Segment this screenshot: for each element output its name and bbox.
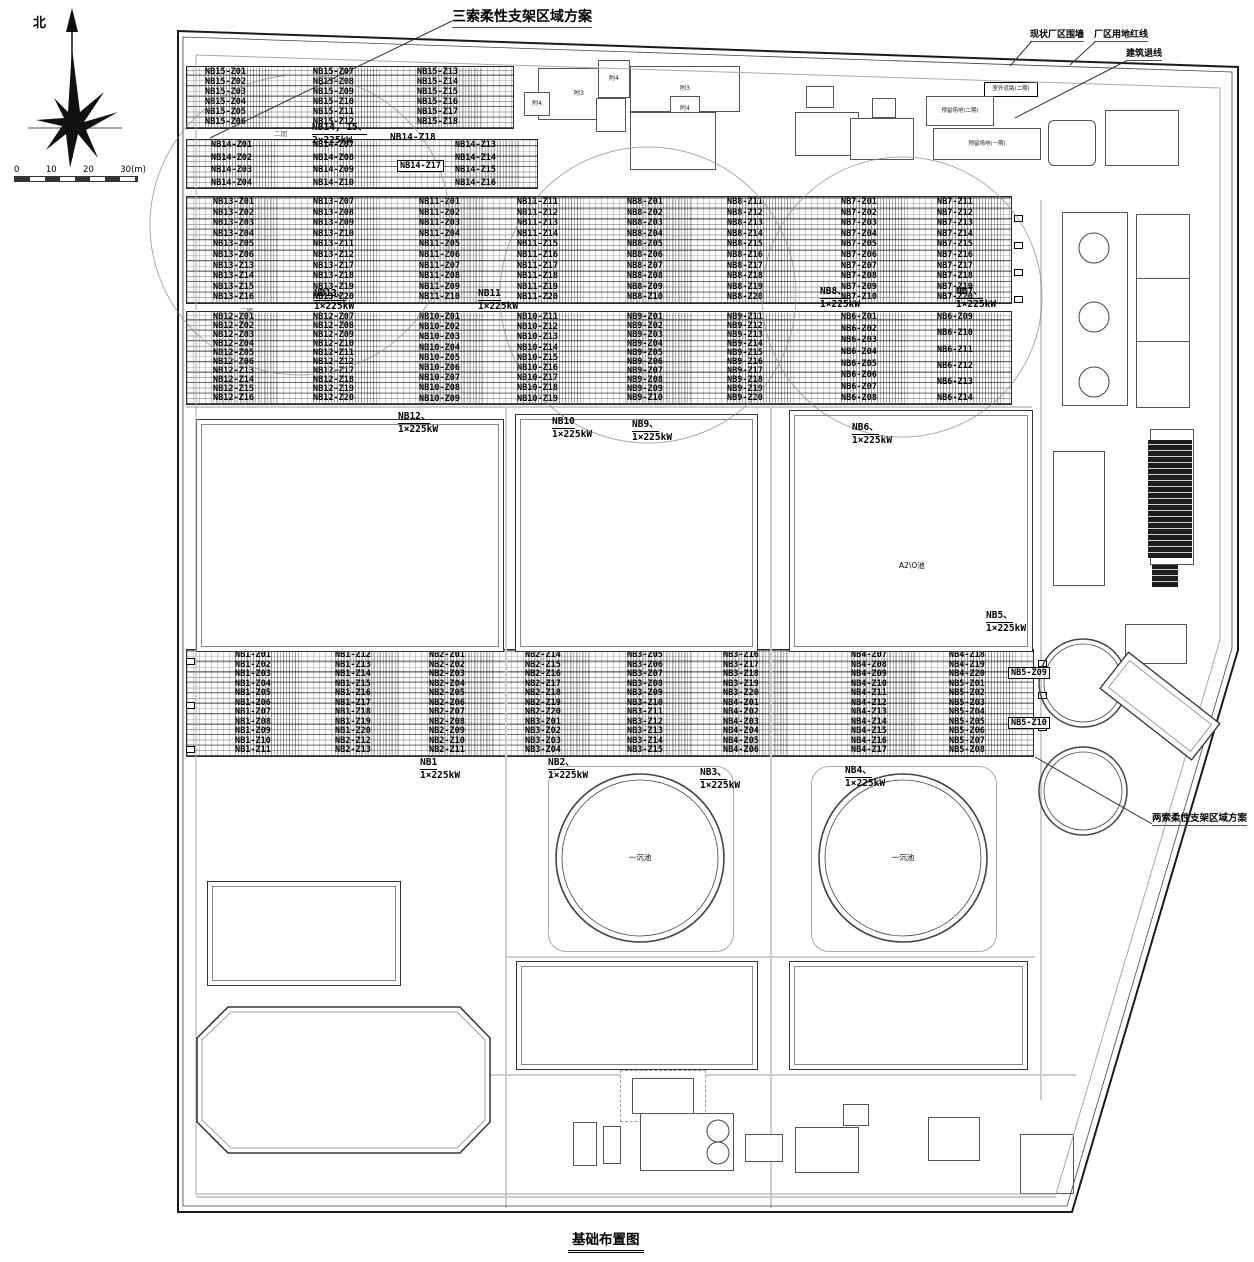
pv-row-label: NB4-Z05 [723, 737, 787, 746]
pv-row-label: NB12-Z16 [213, 394, 277, 403]
pv-row-label: NB1-Z13 [335, 661, 399, 670]
pv-row-label: NB4-Z19 [949, 661, 1013, 670]
pv-row-label: NB2-Z05 [429, 689, 493, 698]
road-line [770, 408, 772, 1208]
pv-label-column: NB1-Z12NB1-Z13NB1-Z14NB1-Z15NB1-Z16NB1-Z… [335, 651, 399, 755]
pv-row-label: NB7-Z02 [841, 209, 905, 218]
pv-row-label: NB13-Z13 [213, 262, 277, 271]
inverter-label-nb11: NB111×225kW [478, 288, 518, 313]
pv-row-label: NB4-Z08 [851, 661, 915, 670]
pv-row-label: NB1-Z19 [335, 718, 399, 727]
pv-row-label: NB6-Z06 [841, 371, 905, 380]
phase1-area-label: 预留场地(一期) [968, 141, 1005, 147]
pv-label-column: NB8-Z11NB8-Z12NB8-Z13NB8-Z14NB8-Z15NB8-Z… [727, 198, 791, 302]
pv-label-column: NB6-Z01NB6-Z02NB6-Z03NB6-Z04NB6-Z05NB6-Z… [841, 313, 905, 403]
callout-nb14-z17: NB14-Z17 [397, 160, 444, 172]
road-line [186, 406, 1032, 408]
pv-label-column: NB3-Z16NB3-Z17NB3-Z18NB3-Z19NB3-Z20NB4-Z… [723, 651, 787, 755]
pv-label-column: NB14-Z13NB14-Z14NB14-Z15NB14-Z16 [455, 141, 519, 187]
pv-row-label: NB3-Z07 [627, 670, 691, 679]
pv-row-label: NB14-Z02 [211, 154, 275, 163]
road-line [196, 1196, 1056, 1198]
scale-tick: 10 [46, 165, 57, 175]
pv-row-label: NB4-Z12 [851, 699, 915, 708]
pv-row-label: NB14-Z04 [211, 179, 275, 188]
pv-row-label: NB14-Z16 [455, 179, 519, 188]
small-building [1125, 624, 1187, 664]
pv-row-label: NB4-Z06 [723, 746, 787, 755]
pv-row-label: NB8-Z05 [627, 240, 691, 249]
pv-row-label: NB11-Z06 [419, 251, 483, 260]
small-building [1048, 120, 1096, 166]
pv-row-label: NB11-Z14 [517, 230, 581, 239]
pv-row-label: NB8-Z18 [727, 272, 791, 281]
pv-row-label: NB8-Z07 [627, 262, 691, 271]
pv-row-label: NB15-Z02 [205, 78, 269, 87]
callout-nb5-z09: NB5-Z09 [1008, 667, 1050, 679]
pv-row-label: NB3-Z18 [723, 670, 787, 679]
pv-row-label: NB10-Z19 [517, 395, 581, 404]
pv-row-label: NB2-Z11 [429, 746, 493, 755]
pv-row-label: NB10-Z05 [419, 354, 483, 363]
rect-basin [516, 961, 758, 1070]
pv-row-label: NB15-Z17 [417, 108, 481, 117]
pv-row-label: NB8-Z10 [627, 293, 691, 302]
pv-label-column: NB11-Z01NB11-Z02NB11-Z03NB11-Z04NB11-Z05… [419, 198, 483, 302]
pv-row-label: NB6-Z12 [937, 362, 1001, 371]
pv-row-label: NB10-Z14 [517, 344, 581, 353]
octagon-basin [197, 1007, 490, 1153]
pv-row-label: NB10-Z13 [517, 333, 581, 342]
pv-row-label: NB11-Z05 [419, 240, 483, 249]
pv-row-label: NB2-Z15 [525, 661, 589, 670]
pv-row-label: NB11-Z20 [517, 293, 581, 302]
pv-row-label: NB7-Z15 [937, 240, 1001, 249]
pv-label-column: NB4-Z07NB4-Z08NB4-Z09NB4-Z10NB4-Z11NB4-Z… [851, 651, 915, 755]
blower-building [1053, 451, 1105, 586]
drawing-title: 基础布置图 [568, 1228, 644, 1253]
pv-row-label: NB4-Z07 [851, 651, 915, 660]
pv-label-column: NB6-Z09NB6-Z10NB6-Z11NB6-Z12NB6-Z13NB6-Z… [937, 313, 1001, 403]
pv-row-label: NB2-Z01 [429, 651, 493, 660]
pv-row-label: NB4-Z16 [851, 737, 915, 746]
pv-row-label: NB11-Z17 [517, 262, 581, 271]
pv-row-label: NB6-Z02 [841, 325, 905, 334]
pv-row-label: NB14-Z14 [455, 154, 519, 163]
pv-row-label: NB8-Z06 [627, 251, 691, 260]
pv-row-label: NB15-Z07 [313, 68, 377, 77]
pv-row-label: NB10-Z03 [419, 333, 483, 342]
scale-tick: 0 [14, 165, 19, 175]
pv-row-label: NB15-Z15 [417, 88, 481, 97]
small-building [806, 86, 834, 108]
small-building [632, 1078, 694, 1114]
treatment-basin [515, 414, 758, 652]
pv-row-label: NB15-Z14 [417, 78, 481, 87]
small-building [843, 1104, 869, 1126]
pv-row-label: NB13-Z16 [213, 293, 277, 302]
pv-row-label: NB13-Z18 [313, 272, 377, 281]
pv-row-label: NB5-Z06 [949, 727, 1013, 736]
phase-mark: 二期 [240, 305, 253, 315]
pv-row-label: NB11-Z16 [517, 251, 581, 260]
inverter-label-nb1: NB11×225kW [420, 757, 460, 782]
pv-row-label: NB15-Z06 [205, 118, 269, 127]
utility-rooms-building [1136, 214, 1190, 408]
pv-row-label: NB1-Z20 [335, 727, 399, 736]
inverter-label-nb2: NB2、1×225kW [548, 757, 588, 782]
pv-row-label: NB7-Z07 [841, 262, 905, 271]
small-building [1105, 110, 1179, 166]
small-building [596, 98, 626, 132]
edge-box [1038, 660, 1047, 667]
pv-label-column: NB9-Z11NB9-Z12NB9-Z13NB9-Z14NB9-Z15NB9-Z… [727, 313, 791, 403]
north-label: 北 [33, 12, 46, 31]
pv-row-label: NB3-Z13 [627, 727, 691, 736]
pv-row-label: NB6-Z13 [937, 378, 1001, 387]
phase1-area-building: 预留场地(一期) [933, 128, 1041, 160]
pv-row-label: NB5-Z02 [949, 689, 1013, 698]
pv-row-label: NB1-Z06 [235, 699, 299, 708]
pv-label-column: NB10-Z11NB10-Z12NB10-Z13NB10-Z14NB10-Z15… [517, 313, 581, 403]
pv-row-label: NB3-Z01 [525, 718, 589, 727]
pv-row-label: NB15-Z05 [205, 108, 269, 117]
pv-row-label: NB4-Z02 [723, 708, 787, 717]
pv-row-label: NB11-Z08 [419, 272, 483, 281]
phase2-road-label-box: 室外道路(二期) [984, 82, 1038, 97]
inverter-label-nb7: NB7、1×225kW [956, 286, 996, 311]
pv-label-column: NB15-Z01NB15-Z02NB15-Z03NB15-Z04NB15-Z05… [205, 68, 269, 127]
pv-row-label: NB13-Z03 [213, 219, 277, 228]
three-cable-annotation: 三索柔性支架区域方案 [452, 6, 592, 28]
pv-row-label: NB6-Z05 [841, 360, 905, 369]
pv-row-label: NB15-Z08 [313, 78, 377, 87]
pv-row-label: NB11-Z11 [517, 198, 581, 207]
pv-row-label: NB10-Z17 [517, 374, 581, 383]
pv-row-label: NB14-Z10 [313, 179, 377, 188]
inverter-label-nb8: NB8、1×225kW [820, 286, 860, 311]
pv-row-label: NB4-Z20 [949, 670, 1013, 679]
annex-label: 附4 [609, 76, 619, 83]
annex-label: 附3 [680, 86, 690, 93]
callout-nb5-z10: NB5-Z10 [1008, 717, 1050, 729]
pv-label-column: NB13-Z07NB13-Z08NB13-Z09NB13-Z10NB13-Z11… [313, 198, 377, 302]
small-building [872, 98, 896, 118]
pv-row-label: NB4-Z04 [723, 727, 787, 736]
pv-row-label: NB14-Z08 [313, 154, 377, 163]
pv-label-column: NB12-Z07NB12-Z08NB12-Z09NB12-Z10NB12-Z11… [313, 313, 377, 403]
pv-label-column: NB2-Z01NB2-Z02NB2-Z03NB2-Z04NB2-Z05NB2-Z… [429, 651, 493, 755]
pv-row-label: NB2-Z14 [525, 651, 589, 660]
equipment-block [1152, 565, 1178, 587]
scale-ticks: 0 10 20 30(m) [14, 165, 146, 175]
pv-row-label: NB13-Z08 [313, 209, 377, 218]
clarifier-label: 一沉池 [873, 852, 933, 863]
pv-row-label: NB8-Z11 [727, 198, 791, 207]
sludge-building [1062, 212, 1128, 406]
pv-row-label: NB6-Z14 [937, 394, 1001, 403]
pv-row-label: NB10-Z01 [419, 313, 483, 322]
inverter-label-nb6: NB6、1×225kW [852, 422, 892, 447]
pv-row-label: NB7-Z05 [841, 240, 905, 249]
scale-tick: 30(m) [120, 165, 146, 175]
pv-row-label: NB4-Z18 [949, 651, 1013, 660]
pv-row-label: NB8-Z08 [627, 272, 691, 281]
edge-box [1014, 215, 1023, 222]
pv-row-label: NB6-Z08 [841, 394, 905, 403]
pv-row-label: NB2-Z16 [525, 670, 589, 679]
pv-row-label: NB4-Z01 [723, 699, 787, 708]
pv-row-label: NB4-Z03 [723, 718, 787, 727]
pv-row-label: NB11-Z12 [517, 209, 581, 218]
pv-row-label: NB2-Z13 [335, 746, 399, 755]
pv-row-label: NB3-Z16 [723, 651, 787, 660]
pv-row-label: NB15-Z04 [205, 98, 269, 107]
pv-row-label: NB10-Z06 [419, 364, 483, 373]
pv-row-label: NB4-Z13 [851, 708, 915, 717]
pv-row-label: NB1-Z10 [235, 737, 299, 746]
inverter-label-nb12: NB12、1×225kW [398, 411, 438, 436]
two-cable-annotation: 两索柔性支架区域方案 [1152, 810, 1247, 826]
pv-row-label: NB15-Z13 [417, 68, 481, 77]
pv-row-label: NB3-Z20 [723, 689, 787, 698]
pv-label-column: NB14-Z01NB14-Z02NB14-Z03NB14-Z04 [211, 141, 275, 187]
pv-row-label: NB8-Z03 [627, 219, 691, 228]
pv-row-label: NB2-Z20 [525, 708, 589, 717]
pv-row-label: NB5-Z07 [949, 737, 1013, 746]
pv-row-label: NB14-Z09 [313, 166, 377, 175]
pv-row-label: NB5-Z08 [949, 746, 1013, 755]
pv-row-label: NB3-Z12 [627, 718, 691, 727]
pv-row-label: NB3-Z03 [525, 737, 589, 746]
pv-band-lower: NB1-Z01NB1-Z02NB1-Z03NB1-Z04NB1-Z05NB1-Z… [186, 649, 1034, 757]
substation-equipment-block [1148, 440, 1192, 558]
pv-row-label: NB4-Z10 [851, 680, 915, 689]
small-building [850, 118, 914, 160]
pv-label-column: NB3-Z05NB3-Z06NB3-Z07NB3-Z08NB3-Z09NB3-Z… [627, 651, 691, 755]
scale-bar-graphic [14, 176, 138, 182]
pv-row-label: NB14-Z15 [455, 166, 519, 175]
pv-row-label: NB10-Z07 [419, 374, 483, 383]
small-building [745, 1134, 783, 1162]
edge-box [1014, 242, 1023, 249]
road-line [505, 956, 1035, 958]
pv-row-label: NB4-Z09 [851, 670, 915, 679]
pv-row-label: NB7-Z06 [841, 251, 905, 260]
inverter-label-nb10: NB101×225kW [552, 416, 592, 441]
pv-row-label: NB8-Z13 [727, 219, 791, 228]
pv-row-label: NB3-Z06 [627, 661, 691, 670]
small-building [795, 1127, 859, 1173]
pv-row-label: NB12-Z20 [313, 394, 377, 403]
edge-box [186, 746, 195, 753]
pv-row-label: NB4-Z11 [851, 689, 915, 698]
pv-row-label: NB1-Z17 [335, 699, 399, 708]
pv-row-label: NB13-Z05 [213, 240, 277, 249]
pv-row-label: NB10-Z08 [419, 384, 483, 393]
red-line-annotation: 厂区用地红线 [1094, 27, 1148, 42]
pv-row-label: NB1-Z18 [335, 708, 399, 717]
pv-label-column: NB1-Z01NB1-Z02NB1-Z03NB1-Z04NB1-Z05NB1-Z… [235, 651, 299, 755]
pv-row-label: NB11-Z13 [517, 219, 581, 228]
pv-row-label: NB3-Z19 [723, 680, 787, 689]
site-plan-drawing: NB15-Z01NB15-Z02NB15-Z03NB15-Z04NB15-Z05… [0, 0, 1254, 1262]
small-building [1020, 1134, 1074, 1194]
pv-row-label: NB7-Z12 [937, 209, 1001, 218]
pv-row-label: NB11-Z10 [419, 293, 483, 302]
inverter-label-nb9: NB9、1×225kW [632, 419, 672, 444]
pv-row-label: NB1-Z08 [235, 718, 299, 727]
angled-building [1100, 652, 1220, 760]
inverter-label-nb4: NB4、1×225kW [845, 765, 885, 790]
callout-nb14-z18: NB14-Z18 [390, 132, 436, 143]
annex-label: 附3 [574, 91, 584, 98]
pv-row-label: NB9-Z20 [727, 394, 791, 403]
pv-row-label: NB13-Z06 [213, 251, 277, 260]
pv-row-label: NB3-Z05 [627, 651, 691, 660]
pv-label-column: NB15-Z13NB15-Z14NB15-Z15NB15-Z16NB15-Z17… [417, 68, 481, 127]
pv-row-label: NB9-Z10 [627, 394, 691, 403]
pv-row-label: NB2-Z08 [429, 718, 493, 727]
pv-row-label: NB8-Z16 [727, 251, 791, 260]
edge-box [186, 702, 195, 709]
pv-row-label: NB2-Z17 [525, 680, 589, 689]
pv-row-label: NB11-Z15 [517, 240, 581, 249]
pv-label-column: NB2-Z14NB2-Z15NB2-Z16NB2-Z17NB2-Z18NB2-Z… [525, 651, 589, 755]
pv-label-column: NB12-Z01NB12-Z02NB12-Z03NB12-Z04NB12-Z05… [213, 313, 277, 403]
pv-row-label: NB15-Z18 [417, 118, 481, 127]
pv-row-label: NB7-Z03 [841, 219, 905, 228]
pv-row-label: NB15-Z09 [313, 88, 377, 97]
pv-row-label: NB7-Z18 [937, 272, 1001, 281]
pv-row-label: NB4-Z17 [851, 746, 915, 755]
pv-band-mid-lower: NB12-Z01NB12-Z02NB12-Z03NB12-Z04NB12-Z05… [186, 311, 1012, 405]
pv-row-label: NB3-Z14 [627, 737, 691, 746]
treatment-basin [196, 419, 504, 652]
pv-row-label: NB7-Z17 [937, 262, 1001, 271]
pv-label-column: NB11-Z11NB11-Z12NB11-Z13NB11-Z14NB11-Z15… [517, 198, 581, 302]
north-arrow-icon [28, 8, 122, 168]
pv-row-label: NB15-Z01 [205, 68, 269, 77]
pv-row-label: NB11-Z01 [419, 198, 483, 207]
road-line [505, 408, 507, 1208]
road-line [1040, 200, 1042, 1100]
pv-row-label: NB7-Z08 [841, 272, 905, 281]
pv-row-label: NB15-Z10 [313, 98, 377, 107]
pv-row-label: NB11-Z02 [419, 209, 483, 218]
pv-row-label: NB11-Z09 [419, 283, 483, 292]
pv-row-label: NB3-Z09 [627, 689, 691, 698]
pv-row-label: NB11-Z07 [419, 262, 483, 271]
pv-row-label: NB8-Z19 [727, 283, 791, 292]
pv-row-label: NB13-Z14 [213, 272, 277, 281]
pv-row-label: NB13-Z07 [313, 198, 377, 207]
edge-box [1014, 296, 1023, 303]
pv-row-label: NB3-Z17 [723, 661, 787, 670]
pv-row-label: NB1-Z16 [335, 689, 399, 698]
pv-row-label: NB8-Z17 [727, 262, 791, 271]
pv-label-column: NB14-Z07NB14-Z08NB14-Z09NB14-Z10 [313, 141, 377, 187]
pv-row-label: NB7-Z04 [841, 230, 905, 239]
pv-row-label: NB1-Z05 [235, 689, 299, 698]
pv-row-label: NB6-Z10 [937, 329, 1001, 338]
pv-row-label: NB15-Z03 [205, 88, 269, 97]
clarifier-label: 一沉池 [610, 852, 670, 863]
pv-row-label: NB3-Z04 [525, 746, 589, 755]
inverter-label-nb5: NB5、1×225kW [986, 610, 1026, 635]
pv-row-label: NB14-Z13 [455, 141, 519, 150]
pv-row-label: NB1-Z12 [335, 651, 399, 660]
scale-bar: 0 10 20 30(m) [14, 165, 146, 182]
edge-box [186, 658, 195, 665]
small-building [573, 1122, 597, 1166]
pv-label-column: NB9-Z01NB9-Z02NB9-Z03NB9-Z04NB9-Z05NB9-Z… [627, 313, 691, 403]
pv-row-label: NB2-Z09 [429, 727, 493, 736]
pv-label-column: NB8-Z01NB8-Z02NB8-Z03NB8-Z04NB8-Z05NB8-Z… [627, 198, 691, 302]
pv-row-label: NB10-Z18 [517, 384, 581, 393]
phase-mark: 二期 [274, 128, 287, 138]
pv-row-label: NB13-Z09 [313, 219, 377, 228]
pv-label-column: NB4-Z18NB4-Z19NB4-Z20NB5-Z01NB5-Z02NB5-Z… [949, 651, 1013, 755]
pv-row-label: NB11-Z04 [419, 230, 483, 239]
pv-row-label: NB7-Z11 [937, 198, 1001, 207]
pv-row-label: NB3-Z10 [627, 699, 691, 708]
pv-row-label: NB15-Z16 [417, 98, 481, 107]
pv-row-label: NB2-Z03 [429, 670, 493, 679]
pv-row-label: NB2-Z10 [429, 737, 493, 746]
pv-row-label: NB11-Z19 [517, 283, 581, 292]
pv-row-label: NB6-Z09 [937, 313, 1001, 322]
pv-row-label: NB13-Z11 [313, 240, 377, 249]
pv-row-label: NB13-Z04 [213, 230, 277, 239]
a2o-basin-label: A2\O池 [899, 560, 925, 571]
pv-row-label: NB3-Z11 [627, 708, 691, 717]
pv-row-label: NB1-Z01 [235, 651, 299, 660]
pv-row-label: NB2-Z06 [429, 699, 493, 708]
pv-row-label: NB2-Z07 [429, 708, 493, 717]
phase2-road-label: 室外道路(二期) [992, 86, 1029, 92]
pv-row-label: NB10-Z02 [419, 323, 483, 332]
pv-row-label: NB13-Z01 [213, 198, 277, 207]
pv-row-label: NB10-Z11 [517, 313, 581, 322]
pv-row-label: NB6-Z07 [841, 383, 905, 392]
pv-row-label: NB8-Z04 [627, 230, 691, 239]
pv-label-column: NB13-Z01NB13-Z02NB13-Z03NB13-Z04NB13-Z05… [213, 198, 277, 302]
pv-row-label: NB7-Z14 [937, 230, 1001, 239]
pv-row-label: NB8-Z02 [627, 209, 691, 218]
scale-tick: 20 [83, 165, 94, 175]
pv-row-label: NB8-Z01 [627, 198, 691, 207]
pv-row-label: NB8-Z20 [727, 293, 791, 302]
pv-row-label: NB3-Z15 [627, 746, 691, 755]
pv-row-label: NB10-Z04 [419, 344, 483, 353]
pv-row-label: NB1-Z02 [235, 661, 299, 670]
annex-label: 附4 [532, 101, 542, 108]
pv-row-label: NB5-Z04 [949, 708, 1013, 717]
rect-basin [207, 881, 401, 986]
pv-row-label: NB2-Z19 [525, 699, 589, 708]
pv-row-label: NB4-Z15 [851, 727, 915, 736]
phase2-area-building: 预留场地(二期) [926, 96, 994, 126]
pv-row-label: NB1-Z11 [235, 746, 299, 755]
setback-annotation: 建筑退线 [1126, 46, 1162, 61]
pv-row-label: NB1-Z09 [235, 727, 299, 736]
pv-row-label: NB14-Z01 [211, 141, 275, 150]
inverter-label-nb3: NB3、1×225kW [700, 767, 740, 792]
pv-label-column: NB15-Z07NB15-Z08NB15-Z09NB15-Z10NB15-Z11… [313, 68, 377, 127]
small-building [928, 1117, 980, 1161]
pv-row-label: NB13-Z10 [313, 230, 377, 239]
